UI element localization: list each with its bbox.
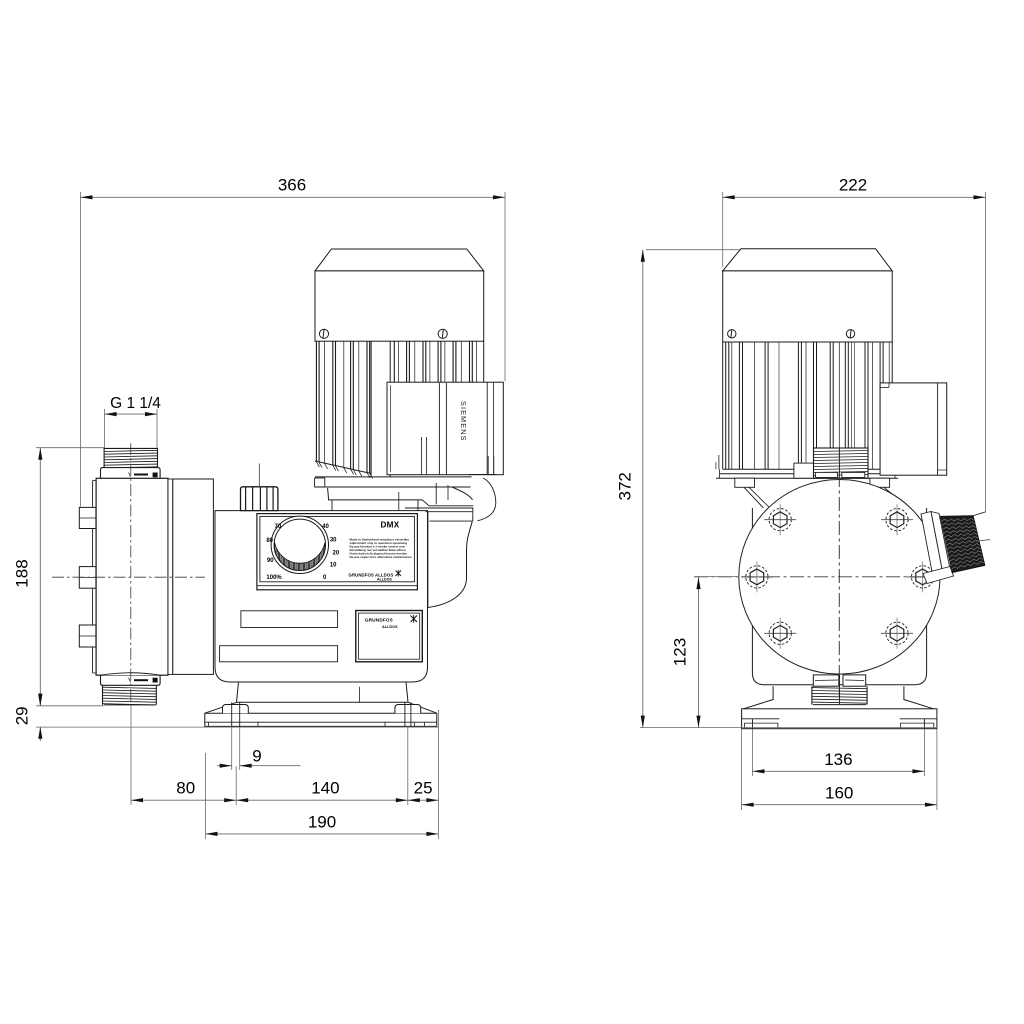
svg-text:Ne pas regler hors alternative: Ne pas regler hors alternative maintenan… — [350, 555, 413, 559]
svg-text:40: 40 — [322, 524, 329, 530]
svg-text:90: 90 — [267, 558, 274, 564]
svg-text:G 1 1/4: G 1 1/4 — [110, 395, 161, 412]
svg-text:123: 123 — [671, 638, 690, 666]
svg-text:70: 70 — [275, 524, 282, 530]
svg-text:140: 140 — [311, 779, 339, 798]
svg-text:100%: 100% — [266, 575, 282, 581]
svg-text:160: 160 — [825, 783, 853, 802]
svg-text:GRUNDFOS ALLDOS: GRUNDFOS ALLDOS — [349, 572, 394, 577]
svg-text:188: 188 — [13, 559, 32, 587]
svg-text:25: 25 — [414, 779, 433, 798]
svg-text:190: 190 — [308, 812, 336, 831]
svg-text:222: 222 — [839, 176, 867, 195]
svg-text:SIEMENS: SIEMENS — [459, 401, 468, 442]
svg-text:20: 20 — [333, 550, 340, 556]
svg-text:GRUNDFOS: GRUNDFOS — [365, 618, 393, 623]
svg-text:30: 30 — [330, 537, 337, 543]
svg-text:10: 10 — [330, 563, 337, 569]
svg-text:80: 80 — [176, 779, 195, 798]
svg-text:DMX: DMX — [380, 521, 399, 530]
svg-text:80: 80 — [266, 538, 273, 544]
svg-text:372: 372 — [615, 472, 634, 500]
svg-text:136: 136 — [824, 750, 852, 769]
svg-text:29: 29 — [13, 706, 32, 725]
svg-text:366: 366 — [278, 176, 306, 195]
svg-text:ALLDOS: ALLDOS — [382, 625, 398, 629]
svg-text:ALLDOS: ALLDOS — [377, 578, 392, 582]
svg-text:9: 9 — [252, 747, 261, 766]
